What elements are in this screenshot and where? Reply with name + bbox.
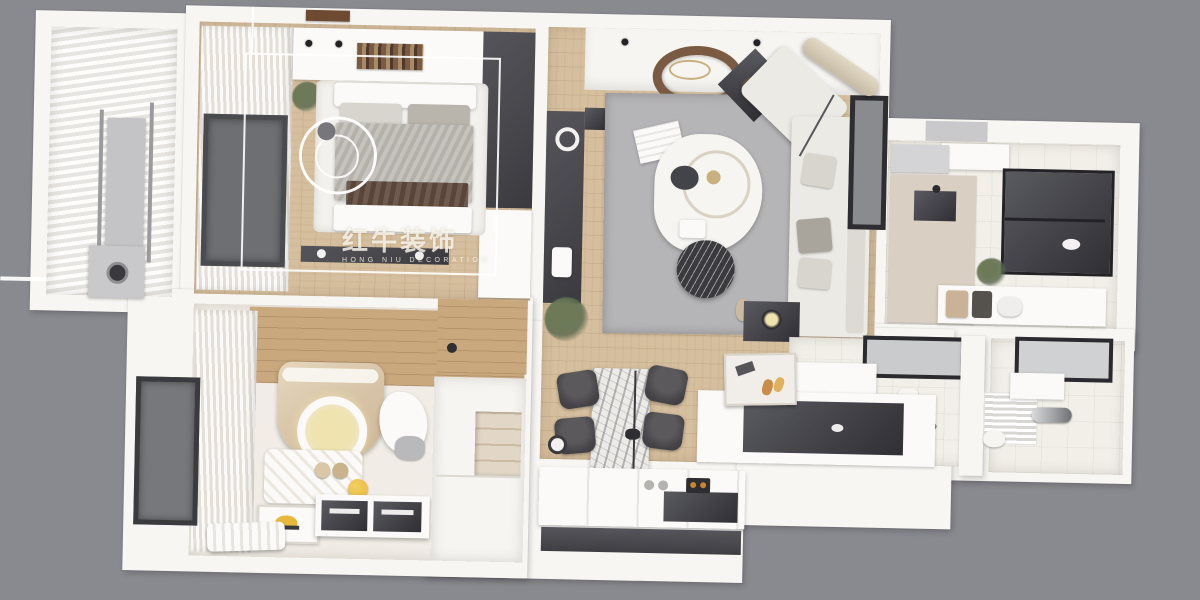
sofa-side-table <box>743 301 800 342</box>
sideboard-glass-inset <box>663 491 738 523</box>
washing-machine <box>88 245 145 298</box>
artwork-shape-icon <box>735 361 755 376</box>
living-pendant-inner-icon <box>669 59 711 80</box>
air-purifier <box>551 247 572 277</box>
chrome-faucet <box>1032 407 1072 423</box>
bathroom-divider-wall <box>958 336 985 476</box>
sofa-pillow-3 <box>797 257 832 290</box>
dining-chair-4 <box>641 411 685 452</box>
bathroom2-shelf <box>1010 373 1065 400</box>
kids-drawer-unit <box>315 494 430 538</box>
kids-curtains <box>191 310 258 553</box>
coffee-machine <box>946 290 969 317</box>
coffee-table-dark-dish <box>670 165 698 190</box>
drawer-contents-icon-2 <box>381 509 413 515</box>
island-cooktop-inset <box>743 400 904 455</box>
kids-window <box>133 376 200 525</box>
dining-chair <box>556 369 601 411</box>
artwork-slipper-icon-2 <box>772 376 785 393</box>
ceiling-track-rail <box>241 53 502 276</box>
bathroom-mirror <box>862 336 965 380</box>
dining-table <box>590 368 650 475</box>
portable-ac-unit <box>207 521 286 551</box>
refrigerator <box>1001 168 1115 276</box>
wall-shelf-decor <box>306 10 350 22</box>
refrigerator-handle-icon <box>1062 239 1080 250</box>
apartment-plan <box>0 0 1200 600</box>
drawer-contents-icon <box>329 508 359 514</box>
kitchen-upper-appliance <box>891 144 950 173</box>
kettle <box>998 296 1022 316</box>
refrigerator-divider <box>1005 217 1105 222</box>
crib-canopy-band <box>282 367 378 383</box>
table-lamp-icon <box>761 309 781 329</box>
dining-chair-3 <box>643 364 689 407</box>
closet-step-shelves <box>474 411 521 476</box>
range-hood-duct <box>925 121 987 142</box>
closet-upper-cabinet <box>436 299 528 375</box>
crib-canopy <box>277 361 385 459</box>
washing-machine-door-icon <box>106 262 128 284</box>
drawer-glass-inset <box>321 500 368 531</box>
hob-knob-icon-2 <box>700 482 706 488</box>
drying-rack-panel <box>105 118 146 247</box>
sideboard-front-panel <box>541 527 741 555</box>
high-chair <box>395 436 425 461</box>
sofa-pillow <box>800 152 837 189</box>
artwork-slipper-icon <box>761 378 775 396</box>
sofa-pillow-2 <box>796 217 833 254</box>
dining-floor-lamp-head-icon <box>625 429 640 440</box>
leaning-artwork <box>724 353 797 406</box>
kitchen-sink <box>914 191 957 222</box>
cooktop-dish-icon <box>831 424 843 432</box>
living-window <box>848 95 889 230</box>
ceiling-spot-icon-2 <box>335 40 342 47</box>
coffee-table-tray <box>679 220 705 239</box>
gas-hob <box>686 478 710 493</box>
hob-knob-icon <box>690 482 696 488</box>
range-hood <box>941 143 1010 170</box>
coffee-grinder <box>972 291 993 318</box>
render-canvas: 红牛装饰 HONG NIU DECORATION <box>0 0 1200 600</box>
media-shelf-box <box>585 108 607 130</box>
toilet <box>983 430 1005 447</box>
drawer-glass-inset-2 <box>373 501 422 532</box>
